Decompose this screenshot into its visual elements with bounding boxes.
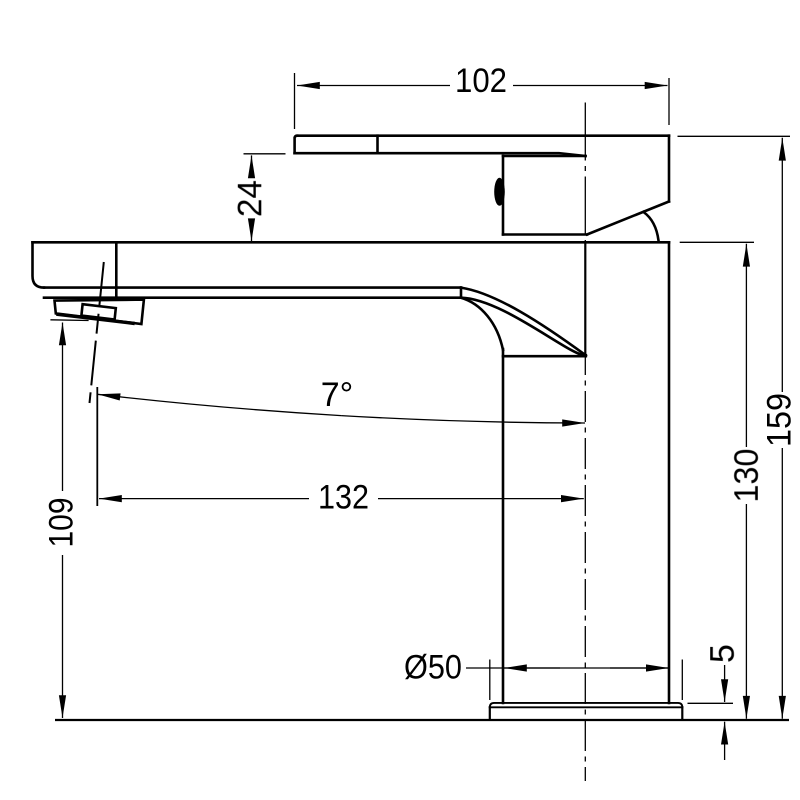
svg-text:24: 24	[231, 180, 269, 217]
svg-text:5: 5	[704, 644, 742, 663]
svg-text:102: 102	[455, 62, 507, 100]
svg-text:132: 132	[318, 479, 369, 517]
svg-text:130: 130	[728, 449, 766, 503]
svg-text:159: 159	[761, 393, 799, 447]
svg-text:109: 109	[43, 498, 81, 548]
svg-text:7°: 7°	[321, 376, 354, 414]
svg-text:Ø50: Ø50	[404, 648, 462, 686]
